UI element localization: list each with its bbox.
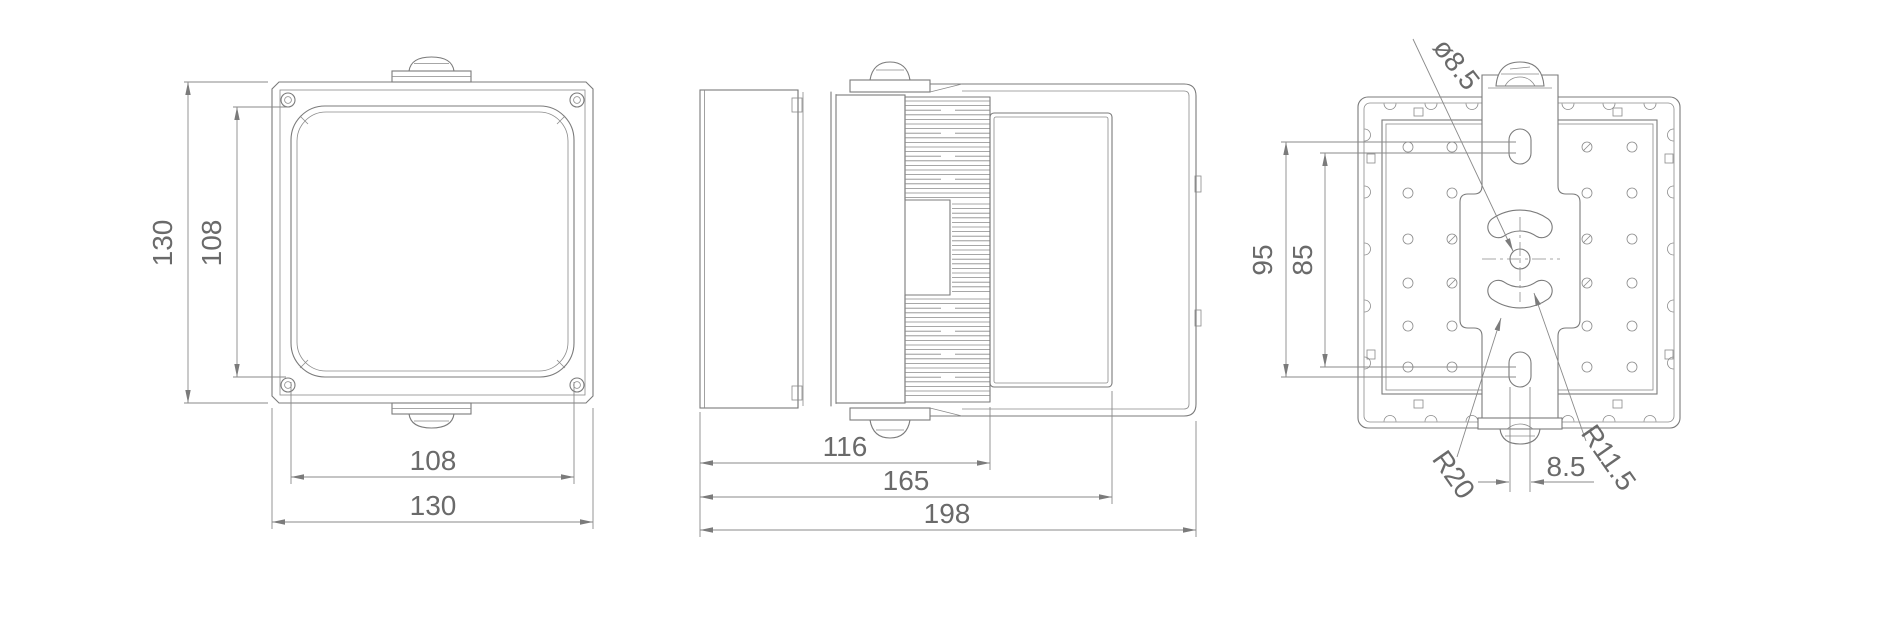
- panel-hole: [1627, 142, 1637, 152]
- dim-depth-mid: 165: [883, 465, 930, 496]
- heatsink-fins: [905, 101, 990, 396]
- side-bottom-screw-dome: [870, 420, 910, 438]
- front-top-tab: [392, 57, 471, 82]
- dim-pitch-outer: 95: [1247, 244, 1278, 275]
- corner-screws: [281, 93, 584, 392]
- dim-pitch-inner: 85: [1287, 244, 1318, 275]
- back-view: 95 85 8.5 ø8.5 R20 R11.5: [1247, 33, 1680, 505]
- side-front-housing: [700, 90, 798, 408]
- back-bottom-screw: [1500, 429, 1540, 444]
- side-mounting-bracket: [850, 62, 1201, 438]
- lens-inner-line: [297, 112, 568, 371]
- drawing-canvas: 130 108 108 130: [0, 0, 1890, 624]
- panel-hole: [1403, 321, 1413, 331]
- panel-hole: [1627, 362, 1637, 372]
- panel-hole: [1447, 142, 1457, 152]
- panel-hole: [1403, 188, 1413, 198]
- back-top-screw: [1496, 62, 1544, 86]
- panel-hole: [1403, 234, 1413, 244]
- panel-hole: [1582, 321, 1592, 331]
- rear-housing-inner-line: [994, 117, 1108, 383]
- panel-hole: [1627, 234, 1637, 244]
- front-dimensions: 130 108 108 130: [147, 82, 593, 529]
- dim-slot-width: 8.5: [1547, 451, 1586, 482]
- panel-hole: [1447, 188, 1457, 198]
- dim-radius-outer: R20: [1426, 445, 1481, 505]
- lens-outline: [291, 106, 574, 377]
- technical-drawing: 130 108 108 130: [0, 0, 1890, 624]
- back-bottom-tab: [1478, 418, 1562, 444]
- dim-height-outer: 130: [147, 220, 178, 267]
- dim-depth-front: 116: [823, 431, 868, 462]
- dim-width-inner: 108: [410, 445, 457, 476]
- heatsink-body: [836, 95, 905, 403]
- side-top-tab: [850, 80, 930, 92]
- panel-hole: [1582, 362, 1592, 372]
- front-view: 130 108 108 130: [147, 57, 593, 529]
- panel-hole: [1447, 321, 1457, 331]
- lens-corner-ticks: [300, 116, 565, 368]
- dim-depth-overall: 198: [924, 498, 971, 529]
- front-body-inner-line: [280, 90, 585, 395]
- front-top-screw-dome: [409, 57, 454, 71]
- panel-hole: [1627, 188, 1637, 198]
- bracket-slot-top: [1509, 129, 1531, 164]
- front-body-outline: [272, 82, 593, 403]
- dim-hole-diameter: ø8.5: [1427, 33, 1486, 96]
- panel-hole: [1627, 278, 1637, 288]
- bracket-slot-bottom: [1509, 352, 1531, 387]
- side-top-screw-dome: [870, 62, 910, 80]
- dim-height-inner: 108: [196, 220, 227, 267]
- rear-housing: [990, 113, 1112, 387]
- panel-hole: [1403, 142, 1413, 152]
- dim-width-outer: 130: [410, 490, 457, 521]
- side-view: 116 165 198: [700, 62, 1201, 537]
- side-bottom-tab: [850, 408, 930, 420]
- panel-hole: [1582, 188, 1592, 198]
- panel-hole: [1403, 278, 1413, 288]
- side-seam-band: [792, 90, 836, 408]
- panel-hole: [1627, 321, 1637, 331]
- front-bottom-tab: [392, 403, 471, 428]
